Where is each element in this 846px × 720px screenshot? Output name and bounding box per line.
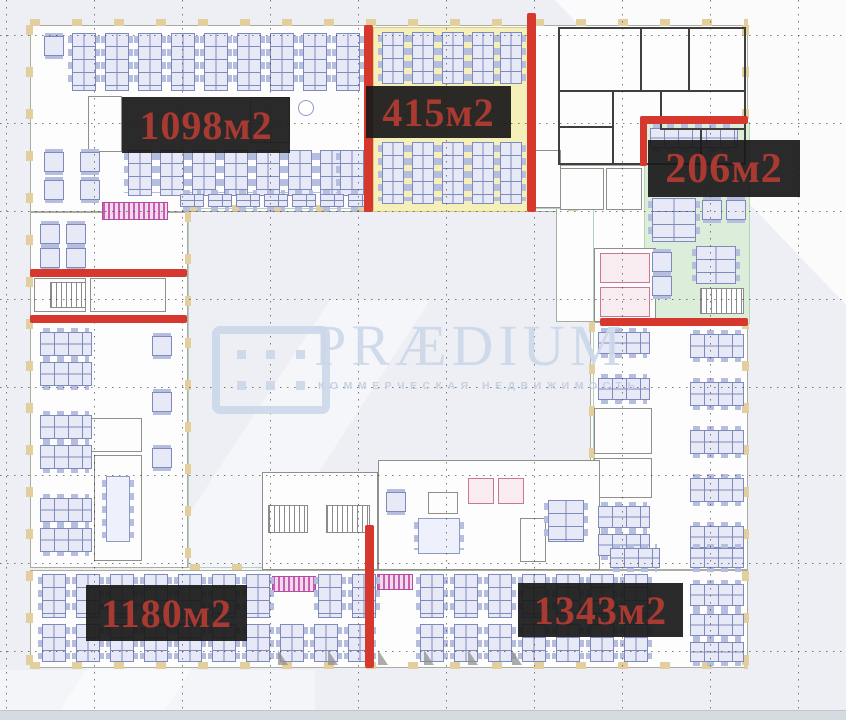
desk-bench	[40, 528, 92, 552]
door-swing-icon	[328, 650, 338, 665]
desk-bench	[72, 33, 96, 91]
room	[594, 408, 652, 454]
table-4-seats	[152, 392, 172, 412]
desk-bench	[690, 430, 744, 454]
desk-bench	[171, 33, 195, 91]
desk-bench	[690, 584, 744, 606]
desk-bench	[382, 142, 404, 204]
bottom-bar	[0, 710, 846, 720]
room	[560, 168, 604, 210]
table-4-seats	[152, 336, 172, 356]
column-strip	[185, 212, 191, 570]
desk-bench	[40, 362, 92, 386]
table-4-seats	[44, 180, 64, 200]
divider-line-left-of-206	[640, 118, 647, 166]
desk-bench	[270, 33, 294, 91]
desk-bench	[690, 382, 744, 406]
cabinet-strip	[377, 574, 413, 590]
desk-bench	[690, 478, 744, 502]
column-strip	[30, 662, 748, 669]
desk-bench	[42, 574, 66, 618]
door-swing-icon	[278, 650, 288, 665]
room	[88, 96, 122, 152]
desk-bench	[382, 32, 404, 84]
desk-bench	[472, 142, 494, 204]
elevator-room	[498, 478, 524, 504]
divider-line-left-wing-lower	[30, 315, 187, 323]
meeting-table	[106, 476, 130, 542]
desk-bench	[412, 32, 434, 84]
table-4-seats	[652, 276, 672, 296]
desk-bench	[598, 506, 650, 528]
divider-line-top-of-206	[640, 116, 748, 124]
room	[520, 518, 546, 562]
table-4-seats	[44, 36, 64, 56]
room	[606, 168, 642, 210]
desk-bench	[500, 32, 522, 84]
desk-bench	[690, 614, 744, 636]
table-4-seats	[44, 152, 64, 172]
divider-line-bottom-center	[365, 525, 374, 668]
area-label-206-text: 206м2	[665, 145, 783, 193]
desk-bench	[105, 33, 129, 91]
desk-bench	[690, 642, 744, 662]
elevator-room	[600, 287, 650, 317]
table-4-seats	[80, 180, 100, 200]
desk-bench	[204, 33, 228, 91]
column-strip	[26, 25, 33, 668]
desk-bench	[488, 624, 512, 662]
table-4-seats	[40, 248, 60, 268]
room	[90, 278, 166, 312]
desk-bench	[598, 332, 650, 354]
cabinet-strip	[272, 576, 316, 592]
area-label-1098: 1098м2	[122, 97, 290, 153]
table-4-seats	[66, 248, 86, 268]
desk-bench	[138, 33, 162, 91]
elevator-room	[600, 253, 650, 283]
desk-bench	[420, 574, 444, 618]
door-swing-icon	[378, 650, 388, 665]
table-4-seats	[702, 200, 722, 220]
desk-bench	[320, 194, 344, 207]
desk-bench	[412, 142, 434, 204]
table-4-seats	[80, 152, 100, 172]
room	[428, 492, 458, 514]
desk-bench	[237, 33, 261, 91]
area-label-1180: 1180м2	[86, 585, 247, 641]
desk-bench	[42, 624, 66, 662]
room	[86, 418, 142, 452]
area-label-415-text: 415м2	[382, 89, 494, 136]
interior-wall	[558, 90, 746, 92]
interior-wall	[688, 27, 690, 90]
desk-bench	[292, 194, 316, 207]
table-4-seats	[652, 252, 672, 272]
desk-bench	[40, 332, 92, 356]
door-swing-icon	[424, 650, 434, 665]
desk-bench	[264, 194, 288, 207]
desk-bench	[690, 548, 744, 568]
interior-wall	[660, 128, 746, 130]
area-label-1180-text: 1180м2	[101, 590, 232, 637]
divider-line-left-wing-upper	[30, 269, 187, 277]
door-swing-icon	[512, 650, 522, 665]
stairs	[326, 505, 370, 533]
desk-bench	[303, 33, 327, 91]
round-table	[298, 100, 314, 116]
desk-bench	[40, 445, 92, 469]
stairs	[700, 288, 744, 314]
door-swing-icon	[468, 650, 478, 665]
area-label-206: 206м2	[648, 140, 800, 197]
desk-bench	[128, 150, 152, 196]
desk-bench	[696, 246, 736, 284]
area-label-415: 415м2	[366, 86, 511, 138]
table-4-seats	[726, 200, 746, 220]
desk-bench	[246, 624, 270, 662]
desk-bench	[160, 150, 184, 196]
room	[594, 458, 652, 498]
table-4-seats	[66, 224, 86, 244]
desk-bench	[336, 33, 360, 91]
desk-bench	[246, 574, 270, 618]
column-strip	[30, 19, 748, 26]
interior-wall	[660, 90, 662, 130]
desk-bench	[454, 574, 478, 618]
desk-bench	[40, 415, 92, 439]
stairs	[50, 282, 86, 308]
desk-bench	[472, 32, 494, 84]
desk-bench	[610, 548, 660, 568]
desk-bench	[690, 334, 744, 358]
desk-bench	[318, 574, 342, 618]
elevator-room	[468, 478, 494, 504]
divider-line-bottom-of-206	[600, 318, 748, 326]
interior-wall	[612, 90, 614, 165]
stairs	[268, 505, 308, 533]
desk-bench	[442, 32, 464, 84]
desk-bench	[236, 194, 260, 207]
interior-wall	[558, 126, 612, 128]
interior-wall	[640, 27, 642, 90]
area-label-1343-text: 1343м2	[534, 587, 667, 634]
desk-bench	[652, 198, 696, 242]
cabinet-strip	[102, 202, 168, 220]
table-4-seats	[152, 448, 172, 468]
desk-bench	[180, 194, 204, 207]
meeting-table	[418, 518, 460, 554]
desk-bench	[500, 142, 522, 204]
area-label-1343: 1343м2	[518, 583, 683, 637]
divider-line-right-of-415	[527, 13, 536, 212]
table-4-seats	[386, 492, 406, 512]
desk-bench	[488, 574, 512, 618]
floor-plan-screenshot: 1098м2 415м2 206м2 1180м2 1343м2 PRÆDIUM…	[0, 0, 846, 720]
desk-bench	[208, 194, 232, 207]
grid-line	[6, 0, 7, 720]
grid-line	[798, 0, 799, 720]
desk-bench	[598, 378, 650, 400]
desk-bench	[40, 498, 92, 522]
area-label-1098-text: 1098м2	[139, 102, 272, 149]
desk-bench	[442, 142, 464, 204]
desk-bench	[548, 500, 584, 542]
table-4-seats	[40, 224, 60, 244]
